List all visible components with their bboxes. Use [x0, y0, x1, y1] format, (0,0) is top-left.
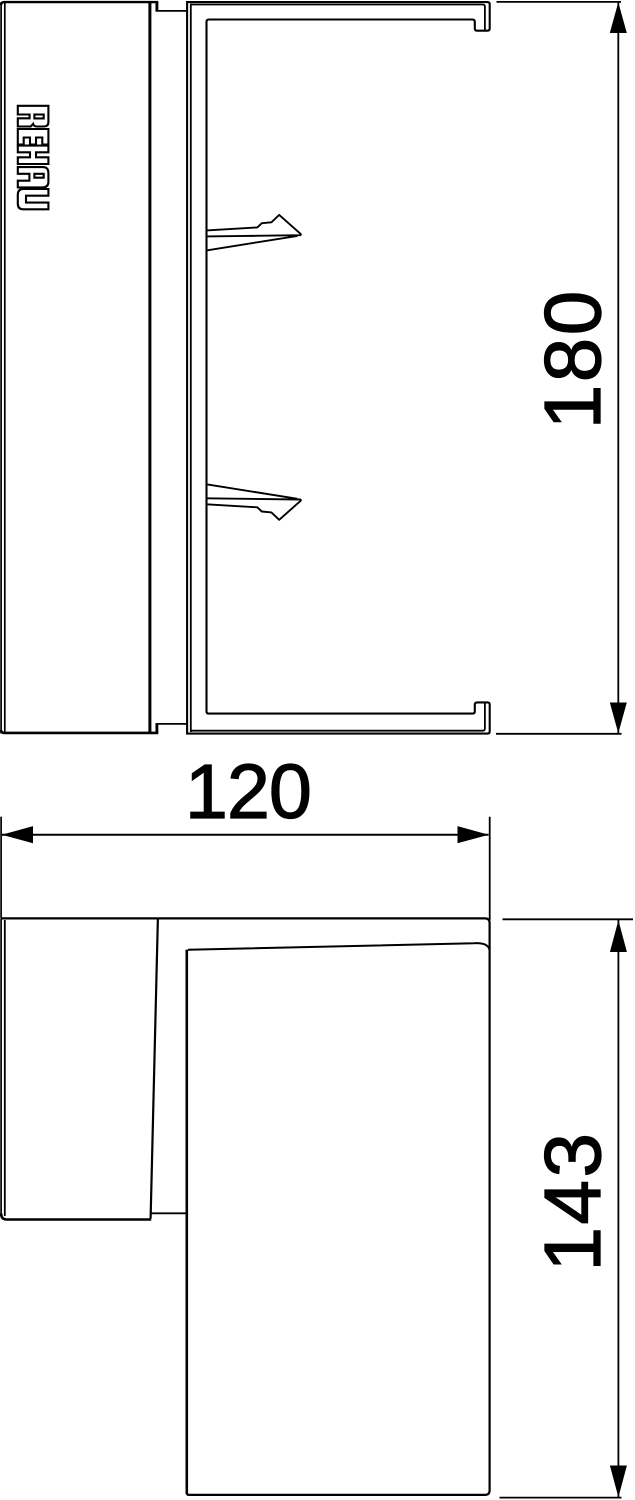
svg-text:180: 180	[528, 288, 617, 429]
svg-text:120: 120	[185, 749, 311, 835]
svg-text:143: 143	[528, 1131, 617, 1272]
